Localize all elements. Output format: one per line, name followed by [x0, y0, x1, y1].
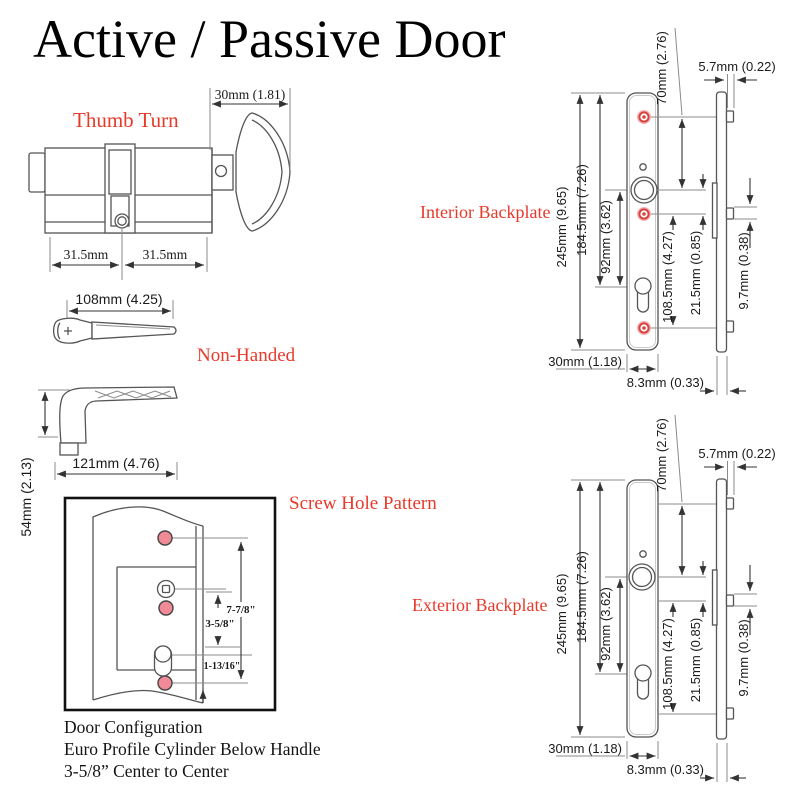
interior-side-screw-top: [727, 111, 734, 122]
pattern-screw-hole-top: [158, 531, 172, 545]
dim-handle-height: 54mm (2.13): [18, 457, 34, 536]
dim-knob-depth: 30mm (1.81): [215, 87, 286, 102]
handle-side-base: [60, 443, 78, 455]
cylinder-screw-hole: [115, 214, 129, 228]
dim-pattern-total: 7-7/8": [226, 604, 255, 616]
dim-ext-screw-spacing: 108.5mm (4.27): [660, 618, 675, 710]
pattern-screw-hole-middle: [159, 601, 173, 615]
cylinder-end-cap: [29, 153, 45, 192]
interior-backplate-drawing: 245mm (9.65) 184.5mm (7.26) 92mm (3.62) …: [548, 28, 775, 395]
interior-screw-top: [637, 110, 651, 124]
handle-side-view: 54mm (2.13) 121mm (4.76): [18, 387, 177, 537]
dim-int-thickness: 5.7mm (0.22): [698, 59, 775, 74]
interior-screw-bottom: [637, 321, 651, 335]
handle-arm: [92, 322, 176, 339]
diagram-page: Active / Passive Door Thumb Turn Non-Han…: [0, 0, 800, 800]
handle-head: [54, 318, 92, 343]
dim-int-top-to-keyhole: 184.5mm (7.26): [574, 164, 589, 256]
dim-int-handle-to-keyhole: 92mm (3.62): [598, 200, 613, 274]
dim-int-screw-projection: 9.7mm (0.38): [736, 232, 751, 309]
dim-int-top-screw: 70mm (2.76): [654, 31, 669, 105]
interior-side-profile: [717, 92, 727, 352]
dim-handle-length: 108mm (4.25): [75, 291, 162, 307]
pattern-screw-hole-bottom: [158, 676, 172, 690]
dim-handle-side-length: 121mm (4.76): [72, 455, 159, 471]
dim-ext-total-height: 245mm (9.65): [554, 574, 569, 655]
dim-ext-width: 30mm (1.18): [548, 741, 622, 756]
dim-int-handle-to-screw: 21.5mm (0.85): [688, 231, 703, 316]
exterior-backplate-drawing: 245mm (9.65) 184.5mm (7.26) 92mm (3.62) …: [548, 415, 775, 782]
dim-ext-screw-projection: 9.7mm (0.38): [736, 619, 751, 696]
dim-ext-handle-to-screw: 21.5mm (0.85): [688, 618, 703, 703]
dim-int-total-height: 245mm (9.65): [554, 187, 569, 268]
handle-top-view: 108mm (4.25): [54, 291, 176, 343]
dim-ext-top-to-keyhole: 184.5mm (7.26): [574, 551, 589, 643]
door-edge-outline: [93, 507, 203, 700]
dim-int-screw-spacing: 108.5mm (4.27): [660, 231, 675, 323]
exterior-side-screw-top: [727, 498, 734, 509]
exterior-side-profile: [717, 479, 727, 739]
interior-side-screw-bottom: [727, 321, 734, 332]
dim-int-width: 30mm (1.18): [548, 354, 622, 369]
dim-int-edge-offset: 8.3mm (0.33): [627, 375, 704, 390]
exterior-side-screw-middle: [727, 595, 734, 606]
interior-side-screw-middle: [727, 208, 734, 219]
spindle-hole: [158, 581, 175, 598]
dim-ext-handle-to-keyhole: 92mm (3.62): [598, 587, 613, 661]
technical-drawing: 30mm (1.81) 31.5mm 31.5mm 108mm (4.25) 5…: [0, 0, 800, 800]
screw-hole-pattern-box: 7-7/8" 3-5/8" 1-13/16": [65, 498, 275, 710]
dim-ext-thickness: 5.7mm (0.22): [698, 446, 775, 461]
dim-left-half: 31.5mm: [64, 247, 109, 262]
dim-ext-top-screw: 70mm (2.76): [654, 418, 669, 492]
dim-pattern-bottom: 1-13/16": [204, 661, 241, 672]
dim-right-half: 31.5mm: [143, 247, 188, 262]
cylinder-drawing: 30mm (1.81) 31.5mm 31.5mm: [29, 87, 290, 280]
dim-pattern-center: 3-5/8": [205, 618, 234, 630]
interior-screw-middle: [637, 207, 651, 221]
dim-ext-edge-offset: 8.3mm (0.33): [627, 762, 704, 777]
exterior-side-screw-bottom: [727, 708, 734, 719]
